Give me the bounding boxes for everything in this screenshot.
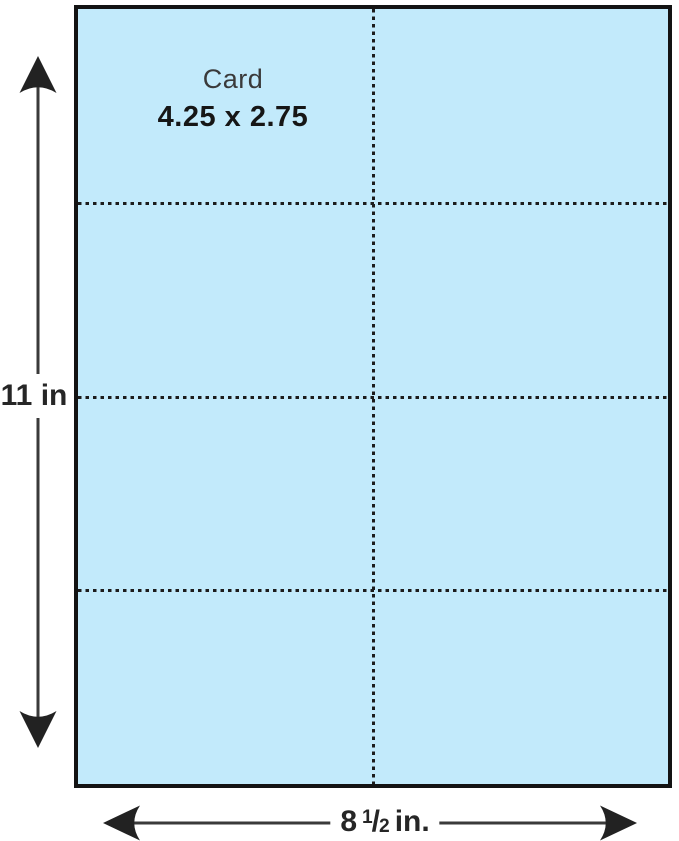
width-dimension-label: 81/2in. <box>330 803 439 841</box>
height-dimension-label: 11 in <box>0 374 68 418</box>
width-unit: in. <box>395 805 430 838</box>
horizontal-perforation-line-2 <box>78 396 668 399</box>
width-whole: 8 <box>340 805 357 838</box>
width-fraction-denominator: 2 <box>379 816 390 837</box>
horizontal-perforation-line-1 <box>78 202 668 205</box>
card-label: Card 4.25 x 2.75 <box>133 64 333 134</box>
diagram-canvas: Card 4.25 x 2.75 11 in 81/2in. <box>0 0 679 841</box>
card-sheet: Card 4.25 x 2.75 <box>74 5 672 788</box>
card-label-title: Card <box>133 64 333 95</box>
horizontal-perforation-line-3 <box>78 589 668 592</box>
card-label-size: 4.25 x 2.75 <box>133 101 333 134</box>
